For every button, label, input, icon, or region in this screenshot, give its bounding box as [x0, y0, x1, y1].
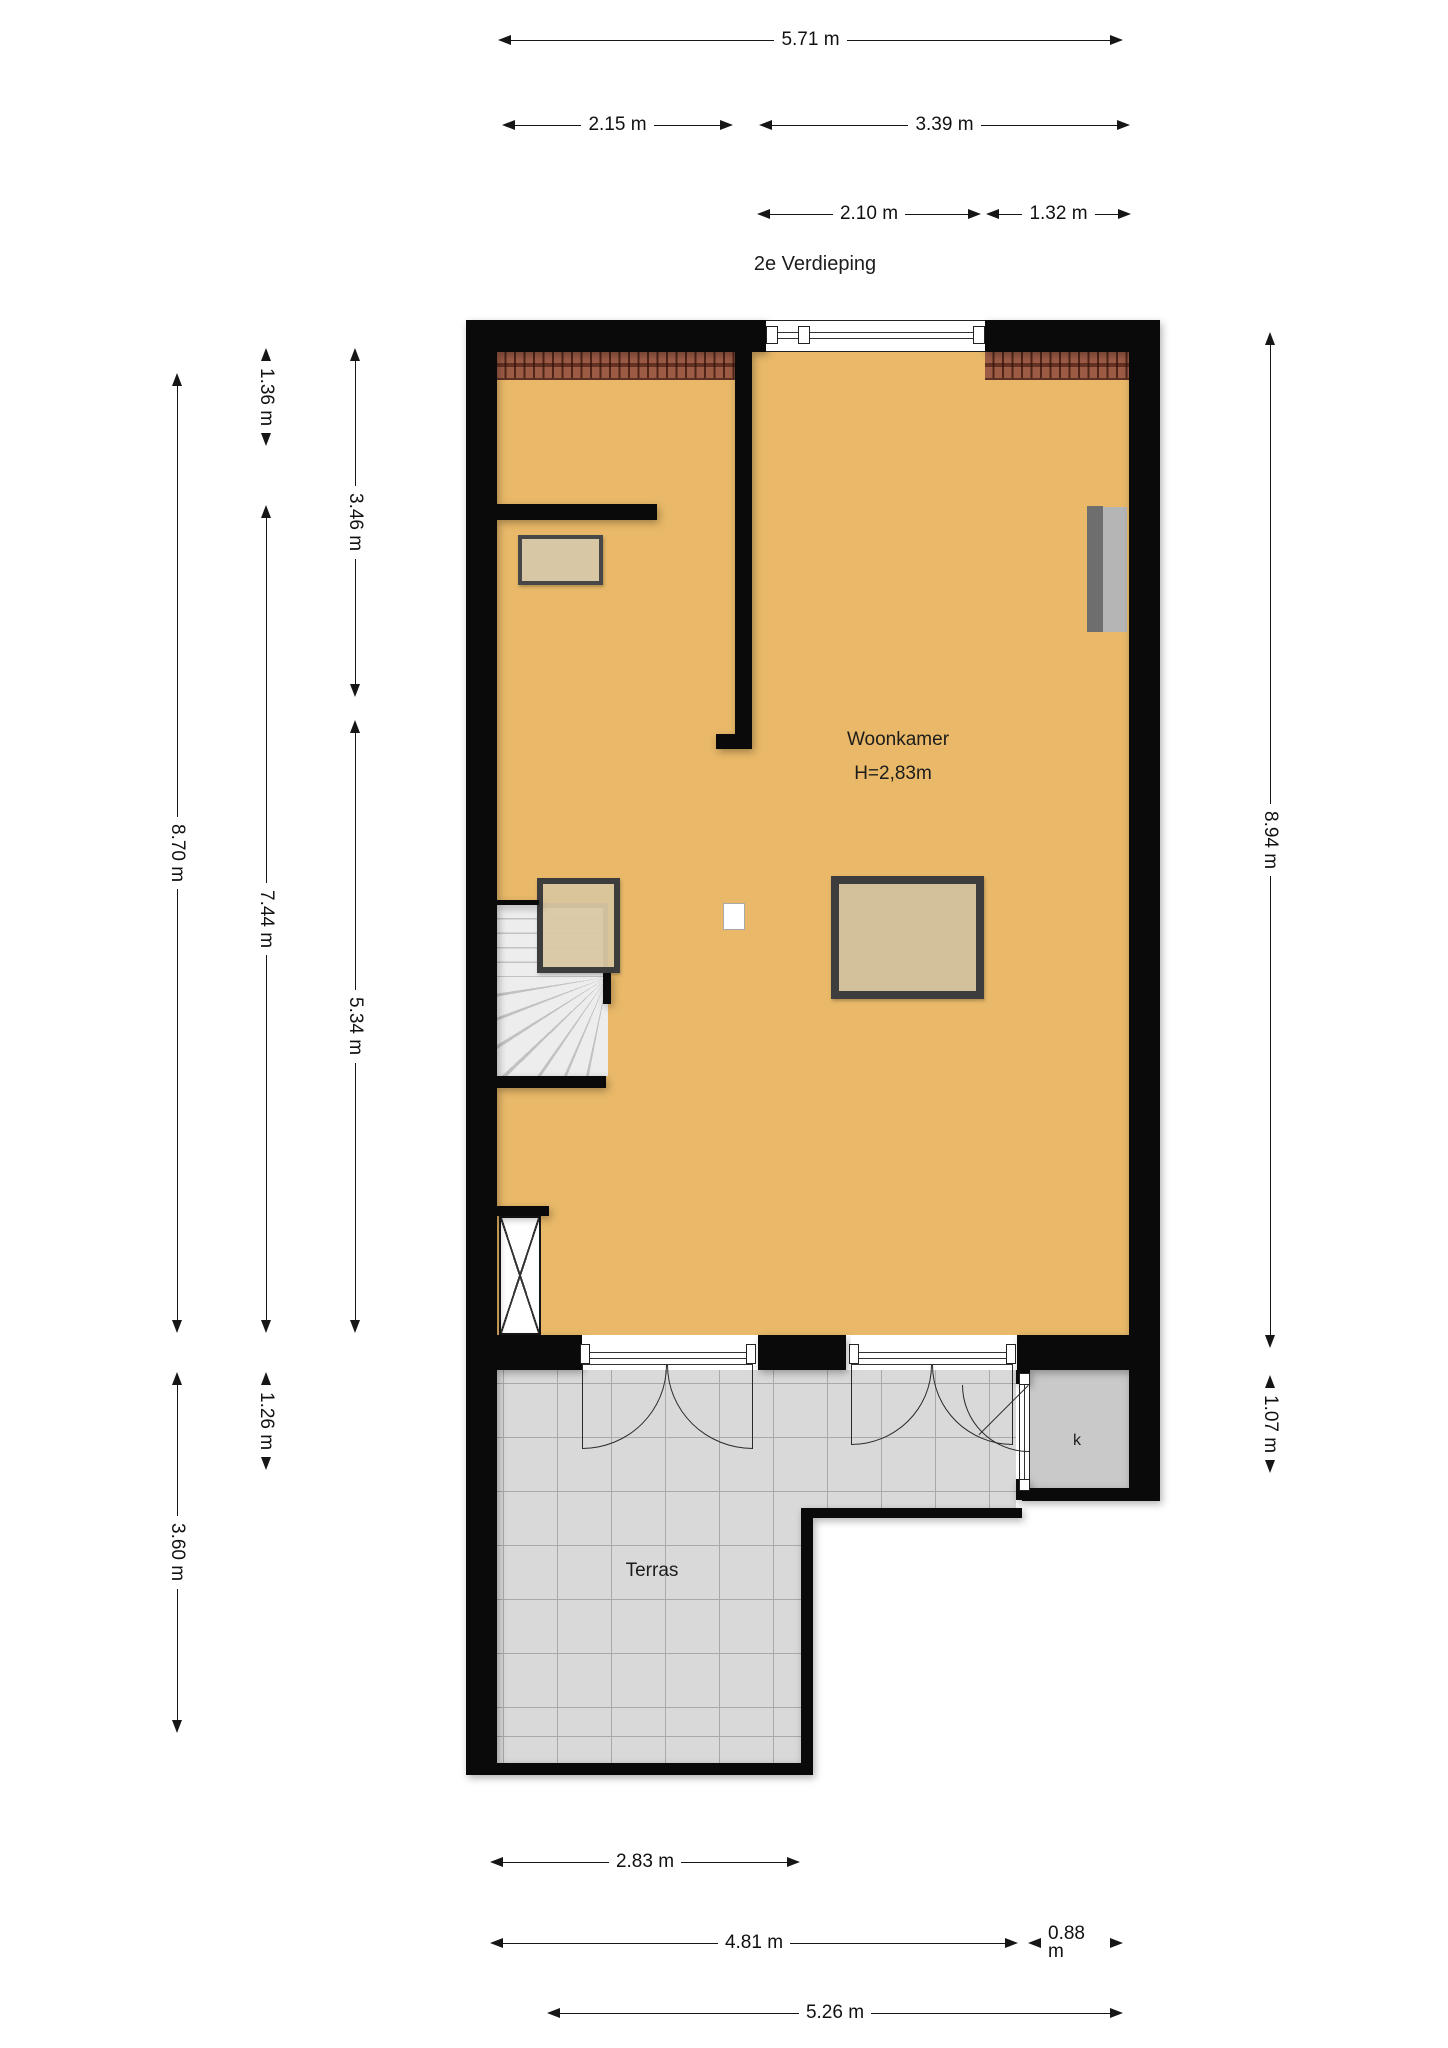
door-post	[1006, 1344, 1016, 1364]
arrow-up-icon	[1265, 1375, 1275, 1388]
dim-line	[981, 125, 1117, 126]
dim-line	[503, 1862, 609, 1863]
wall-top-left	[466, 320, 766, 352]
door-frame-line	[582, 1358, 753, 1359]
dim-bottom-088: 0.88 m	[1028, 1934, 1123, 1952]
dim-line	[355, 1063, 356, 1320]
arrow-down-icon	[350, 684, 360, 697]
arrow-down-icon	[350, 1320, 360, 1333]
dim-line	[772, 125, 908, 126]
arrow-down-icon	[172, 1720, 182, 1733]
dim-line	[177, 1385, 178, 1516]
door-frame-line	[851, 1358, 1013, 1359]
dim-bottom-283: 2.83 m	[490, 1853, 800, 1871]
room-label-closet: k	[1073, 1432, 1081, 1450]
terrace-wall-right	[801, 1508, 813, 1775]
dim-bottom-481: 4.81 m	[490, 1934, 1018, 1952]
dim-left-346: 3.46 m	[342, 348, 368, 697]
dim-text: 3.39 m	[908, 116, 980, 134]
arrow-left-icon	[759, 120, 772, 130]
dim-line	[871, 2013, 1110, 2014]
arrow-right-icon	[1117, 120, 1130, 130]
wall-left	[466, 320, 497, 1775]
dim-left-136: 1.36 m	[253, 348, 279, 482]
wall-bottom-pier-right	[1017, 1335, 1129, 1370]
door-post	[580, 1344, 590, 1364]
arrow-down-icon	[1265, 1335, 1275, 1348]
dim-text: 3.46 m	[344, 486, 366, 558]
table-wall-stub	[603, 973, 611, 1004]
dim-line	[355, 733, 356, 990]
dim-text: 0.88 m	[1041, 1925, 1110, 1961]
door-post	[746, 1344, 756, 1364]
arrow-left-icon	[498, 35, 511, 45]
dim-line	[177, 1589, 178, 1720]
arrow-right-icon	[720, 120, 733, 130]
dim-top-window: 2.10 m	[757, 205, 981, 223]
arrow-left-icon	[986, 209, 999, 219]
dim-text: 1.26 m	[255, 1385, 277, 1457]
wall-bottom-pier-left	[497, 1335, 582, 1370]
dim-line	[654, 125, 720, 126]
dim-line	[177, 386, 178, 817]
arrow-up-icon	[1265, 332, 1275, 345]
dim-line	[515, 125, 581, 126]
dim-text: 3.60 m	[166, 1516, 188, 1588]
dim-line	[355, 559, 356, 684]
dim-text: 5.71 m	[774, 31, 846, 49]
arrow-left-icon	[547, 2008, 560, 2018]
dim-line	[1270, 876, 1271, 1335]
dim-line	[790, 1943, 1005, 1944]
terrace-notch-wall	[801, 1508, 1022, 1518]
arrow-left-icon	[490, 1938, 503, 1948]
arrow-up-icon	[172, 373, 182, 386]
dim-top-corner: 1.32 m	[986, 205, 1131, 223]
dim-top-total: 5.71 m	[498, 31, 1123, 49]
dim-right-107: 1.07 m	[1257, 1375, 1283, 1487]
dim-text: 8.70 m	[166, 817, 188, 889]
dim-line	[177, 889, 178, 1320]
dim-text: 2.10 m	[833, 205, 905, 223]
dim-left-744: 7.44 m	[253, 505, 279, 1333]
arrow-right-icon	[1110, 2008, 1123, 2018]
wall-bottom-pier-center	[758, 1335, 846, 1370]
arrow-right-icon	[787, 1857, 800, 1867]
stub-wall	[497, 504, 657, 520]
dim-line	[266, 518, 267, 883]
arrow-up-icon	[350, 348, 360, 361]
dim-bottom-526: 5.26 m	[547, 2004, 1123, 2022]
dim-left-870: 8.70 m	[164, 373, 190, 1333]
walls	[0, 0, 1448, 2048]
dim-line	[1095, 214, 1118, 215]
dim-line	[503, 1943, 718, 1944]
dim-line	[770, 214, 833, 215]
dim-line	[999, 214, 1022, 215]
dim-text: 8.94 m	[1259, 804, 1281, 876]
stair-top-edge	[497, 900, 539, 905]
dim-left-534: 5.34 m	[342, 720, 368, 1333]
dim-text: 5.26 m	[799, 2004, 871, 2022]
arrow-up-icon	[350, 720, 360, 733]
door-frame-line	[851, 1352, 1013, 1353]
arrow-down-icon	[261, 433, 271, 446]
dim-line	[560, 2013, 799, 2014]
window-post	[766, 326, 778, 344]
wall-right	[1129, 320, 1160, 1500]
arrow-up-icon	[172, 1372, 182, 1385]
dim-text: 5.34 m	[344, 990, 366, 1062]
interior-wall	[735, 352, 752, 749]
arrow-down-icon	[261, 1457, 271, 1470]
dim-text: 7.44 m	[255, 883, 277, 955]
room-label-living-height: H=2,83m	[854, 763, 932, 785]
interior-wall-foot	[716, 734, 752, 749]
dim-left-126: 1.26 m	[253, 1372, 279, 1493]
arrow-right-icon	[1118, 209, 1131, 219]
dim-line	[847, 40, 1110, 41]
arrow-up-icon	[261, 505, 271, 518]
floorplan-page: 2e Verdieping Woonkamer H=2,83m Terras k…	[0, 0, 1448, 2048]
dim-line	[511, 40, 774, 41]
dim-text: 1.32 m	[1022, 205, 1094, 223]
dim-text: 2.15 m	[581, 116, 653, 134]
dim-line	[355, 361, 356, 486]
dim-line	[266, 955, 267, 1320]
terrace-wall-bottom	[466, 1763, 813, 1775]
door-post	[849, 1344, 859, 1364]
stair-bottom-edge	[494, 1076, 606, 1088]
dim-left-360: 3.60 m	[164, 1372, 190, 1733]
arrow-right-icon	[968, 209, 981, 219]
dim-top-left: 2.15 m	[502, 116, 733, 134]
window-post	[973, 326, 985, 344]
niche-stub-wall	[497, 1206, 549, 1216]
arrow-up-icon	[261, 1372, 271, 1385]
arrow-right-icon	[1005, 1938, 1018, 1948]
arrow-right-icon	[1110, 1938, 1123, 1948]
arrow-left-icon	[490, 1857, 503, 1867]
arrow-up-icon	[261, 348, 271, 361]
dim-line	[1270, 345, 1271, 804]
dim-line	[681, 1862, 787, 1863]
closet-door-post	[1019, 1373, 1030, 1385]
arrow-down-icon	[1265, 1460, 1275, 1473]
door-frame-line	[582, 1352, 753, 1353]
dim-text: 2.83 m	[609, 1853, 681, 1871]
closet-wall-bottom	[1022, 1488, 1160, 1501]
arrow-left-icon	[1028, 1938, 1041, 1948]
dim-right-894: 8.94 m	[1257, 332, 1283, 1348]
window-post	[798, 326, 810, 344]
dim-text: 1.36 m	[255, 361, 277, 433]
closet-door-post	[1019, 1479, 1030, 1491]
dim-text: 1.07 m	[1259, 1388, 1281, 1460]
arrow-down-icon	[261, 1320, 271, 1333]
arrow-down-icon	[172, 1320, 182, 1333]
dim-top-right: 3.39 m	[759, 116, 1130, 134]
dim-line	[905, 214, 968, 215]
page-title: 2e Verdieping	[754, 253, 876, 276]
arrow-left-icon	[502, 120, 515, 130]
arrow-left-icon	[757, 209, 770, 219]
room-label-living: Woonkamer	[847, 729, 949, 751]
dim-text: 4.81 m	[718, 1934, 790, 1952]
arrow-right-icon	[1110, 35, 1123, 45]
room-label-terrace: Terras	[626, 1560, 679, 1582]
